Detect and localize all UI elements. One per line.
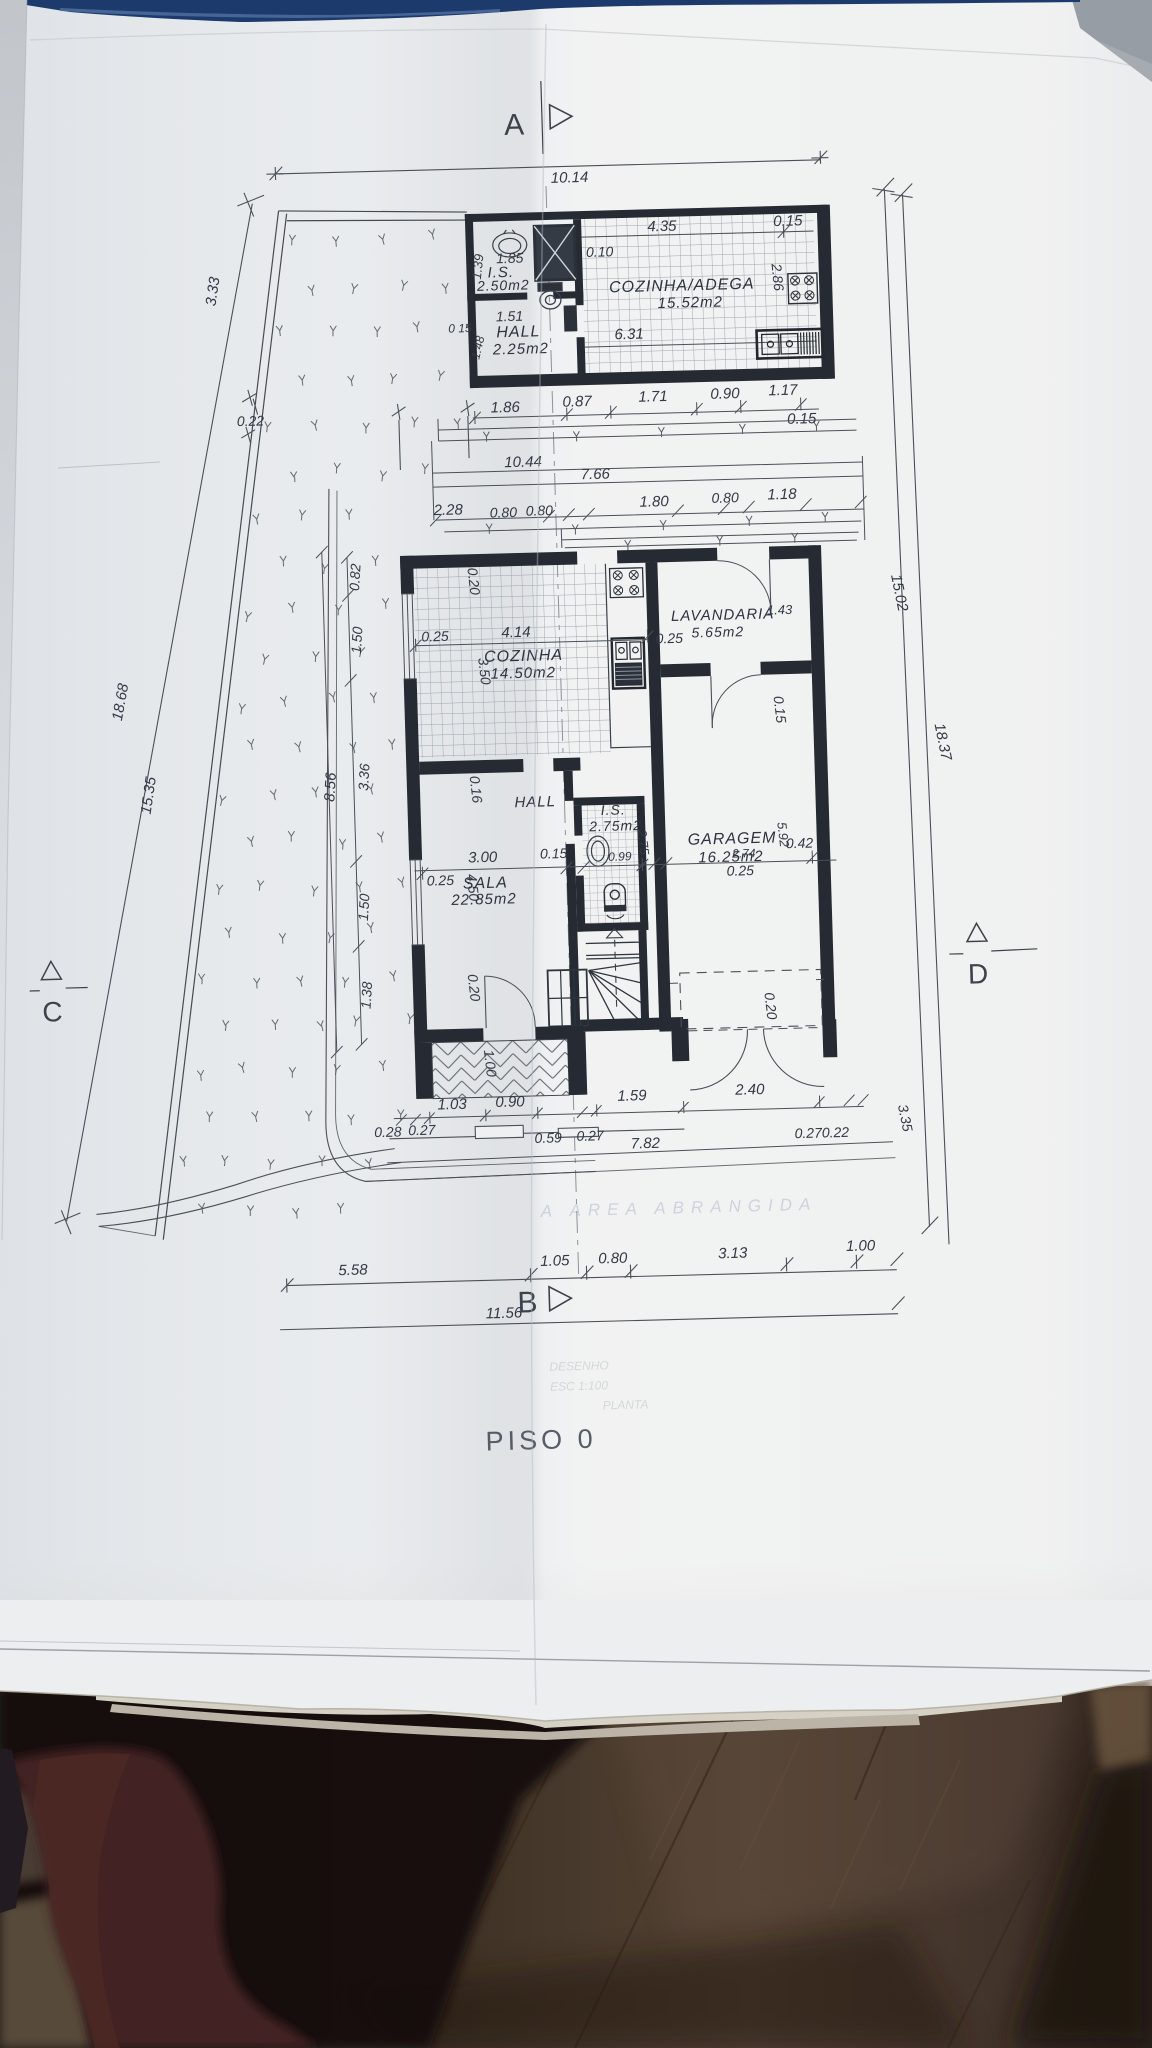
svg-text:0.15: 0.15	[773, 212, 803, 230]
svg-text:1.80: 1.80	[639, 493, 669, 511]
svg-text:1.50: 1.50	[355, 893, 373, 921]
svg-text:0.82: 0.82	[346, 563, 364, 591]
svg-text:3.35: 3.35	[895, 1103, 916, 1133]
svg-text:0.22: 0.22	[237, 412, 265, 429]
svg-text:0.80: 0.80	[711, 489, 739, 506]
svg-text:DESENHO: DESENHO	[549, 1358, 609, 1374]
svg-text:HALL: HALL	[496, 323, 541, 341]
svg-text:0.59: 0.59	[534, 1129, 562, 1146]
svg-text:4.14: 4.14	[501, 624, 531, 642]
svg-text:18.68: 18.68	[109, 681, 133, 722]
svg-text:0.16: 0.16	[467, 775, 486, 804]
svg-text:6.31: 6.31	[614, 326, 644, 344]
svg-text:0.90: 0.90	[495, 1093, 525, 1111]
svg-text:1.17: 1.17	[768, 382, 798, 400]
svg-text:8.56: 8.56	[321, 771, 340, 802]
svg-text:2.28: 2.28	[432, 501, 463, 519]
svg-text:10.14: 10.14	[551, 169, 589, 187]
svg-text:0.270.22: 0.270.22	[794, 1124, 849, 1141]
svg-text:LAVANDARIA: LAVANDARIA	[671, 605, 775, 625]
svg-text:0.80: 0.80	[525, 502, 553, 519]
svg-text:0.25: 0.25	[655, 630, 683, 647]
svg-text:22.85m2: 22.85m2	[450, 890, 517, 909]
svg-text:7.82: 7.82	[631, 1135, 661, 1153]
svg-text:4.35: 4.35	[647, 218, 677, 236]
svg-text:5.65m2: 5.65m2	[691, 623, 744, 640]
svg-text:0.27: 0.27	[576, 1127, 605, 1144]
svg-text:7.66: 7.66	[580, 466, 610, 484]
svg-text:0.25: 0.25	[421, 628, 449, 645]
svg-text:0.99: 0.99	[608, 849, 632, 864]
svg-text:1.05: 1.05	[540, 1252, 570, 1270]
svg-text:I.S.: I.S.	[601, 801, 626, 818]
svg-text:2.40: 2.40	[734, 1081, 765, 1099]
svg-text:2.50m2: 2.50m2	[476, 276, 530, 293]
svg-text:1.38: 1.38	[358, 981, 376, 1009]
svg-text:15.35: 15.35	[138, 775, 160, 815]
svg-text:0.90: 0.90	[710, 385, 740, 403]
svg-text:1.71: 1.71	[638, 388, 668, 406]
svg-text:1.59: 1.59	[617, 1087, 647, 1105]
svg-text:0.15: 0.15	[540, 845, 568, 862]
svg-text:15.02: 15.02	[887, 573, 911, 614]
svg-text:0.20: 0.20	[761, 991, 780, 1020]
svg-text:1.86: 1.86	[490, 399, 520, 417]
svg-text:2.86: 2.86	[768, 262, 787, 292]
svg-text:0.80: 0.80	[490, 504, 518, 521]
svg-text:0.25: 0.25	[426, 872, 454, 889]
svg-text:1.39: 1.39	[469, 253, 487, 280]
svg-text:3.00: 3.00	[468, 849, 498, 867]
svg-text:15.52m2: 15.52m2	[657, 293, 723, 312]
svg-text:18.37: 18.37	[931, 722, 955, 763]
svg-text:GARAGEM: GARAGEM	[687, 829, 776, 848]
svg-text:A AREA ABRANGIDA: A AREA ABRANGIDA	[539, 1195, 817, 1221]
svg-text:1.51: 1.51	[496, 308, 524, 325]
svg-text:2.75: 2.75	[634, 828, 652, 857]
svg-text:PISO 0: PISO 0	[485, 1424, 597, 1457]
svg-text:16.25m2: 16.25m2	[698, 848, 764, 867]
svg-text:0.28: 0.28	[374, 1123, 402, 1140]
svg-text:0.87: 0.87	[562, 393, 592, 411]
svg-text:1.18: 1.18	[767, 486, 797, 504]
svg-text:2.75m2: 2.75m2	[588, 817, 642, 834]
svg-text:0.20: 0.20	[465, 973, 484, 1002]
svg-text:3.36: 3.36	[355, 763, 373, 791]
svg-text:3.33: 3.33	[202, 275, 223, 307]
svg-text:0.20: 0.20	[464, 567, 483, 596]
svg-text:0.10: 0.10	[586, 243, 614, 260]
svg-text:1.43: 1.43	[767, 602, 794, 618]
svg-text:COZINHA: COZINHA	[484, 647, 563, 666]
svg-text:0.80: 0.80	[598, 1250, 628, 1268]
svg-text:14.50m2: 14.50m2	[490, 664, 556, 683]
svg-text:11.56: 11.56	[486, 1304, 524, 1322]
svg-text:0 15: 0 15	[448, 321, 472, 336]
svg-text:5.92: 5.92	[774, 821, 792, 849]
svg-text:PLANTA: PLANTA	[602, 1397, 648, 1412]
svg-text:A: A	[504, 108, 525, 142]
svg-text:0.15: 0.15	[787, 410, 817, 428]
svg-text:5.58: 5.58	[338, 1261, 368, 1279]
svg-text:D: D	[967, 958, 988, 990]
svg-text:C: C	[42, 996, 63, 1028]
svg-text:1.50: 1.50	[348, 626, 366, 654]
svg-text:0.27: 0.27	[408, 1122, 437, 1139]
svg-text:1.00: 1.00	[846, 1237, 876, 1255]
svg-text:1.03: 1.03	[437, 1096, 467, 1114]
svg-text:1.00: 1.00	[481, 1049, 500, 1078]
svg-text:0.15: 0.15	[771, 695, 790, 724]
svg-text:10.44: 10.44	[504, 453, 542, 471]
svg-text:ESC 1:100: ESC 1:100	[550, 1378, 609, 1394]
svg-text:3.13: 3.13	[718, 1245, 748, 1263]
